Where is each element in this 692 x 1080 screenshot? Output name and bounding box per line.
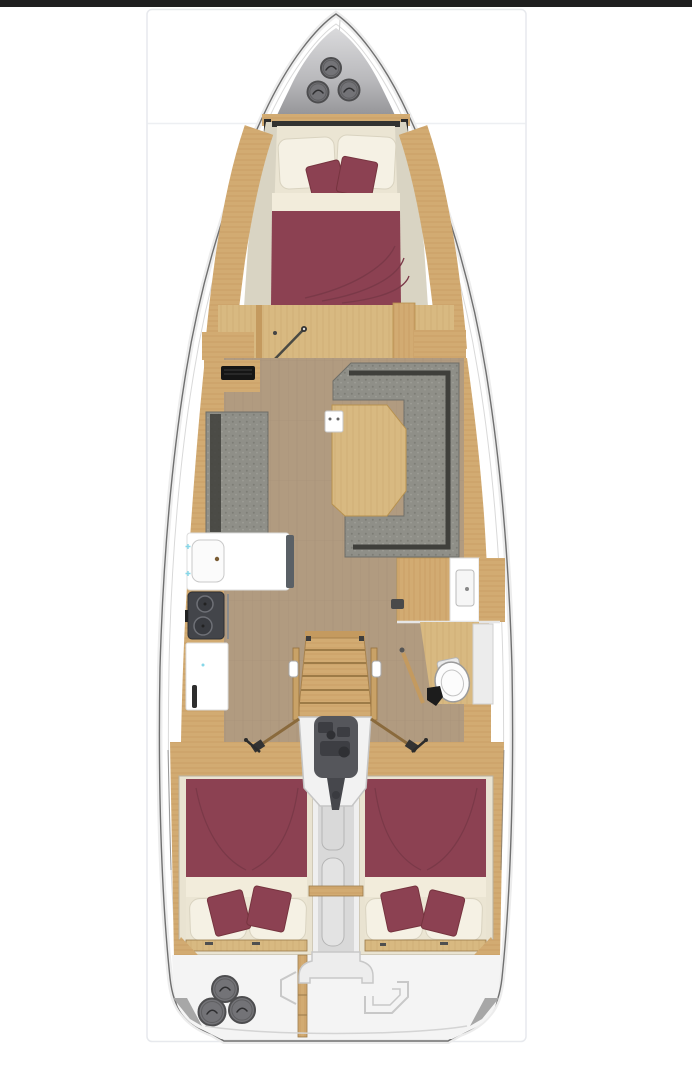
forward-berth bbox=[271, 121, 409, 307]
fridge-handle bbox=[192, 685, 197, 708]
berth-foot-trim bbox=[186, 940, 307, 951]
engine-pulley bbox=[339, 747, 350, 758]
hanging-locker bbox=[393, 303, 415, 363]
stair-bracket bbox=[306, 636, 311, 641]
trim-latch bbox=[440, 942, 448, 945]
cabinet-divider bbox=[256, 305, 262, 363]
engine-detail bbox=[337, 727, 350, 737]
handle-knob bbox=[424, 738, 428, 742]
stair-rail-port bbox=[293, 648, 299, 720]
starboard-cabinet-fwd bbox=[414, 330, 466, 360]
port-cabinet-fwd bbox=[202, 332, 254, 360]
engine-pulley bbox=[327, 731, 336, 740]
grab-handle bbox=[372, 661, 381, 677]
vent-grille-icon bbox=[221, 366, 255, 380]
stair-bracket bbox=[359, 636, 364, 641]
aft-cabin-starboard bbox=[359, 776, 497, 963]
door-hinge-pin bbox=[303, 328, 305, 330]
shower-panel bbox=[473, 624, 493, 704]
aft-cabin-port bbox=[175, 776, 313, 963]
door-handle-icon bbox=[391, 599, 404, 609]
latch-dot bbox=[337, 418, 340, 421]
page-canvas bbox=[0, 0, 692, 1080]
handle-knob bbox=[244, 738, 248, 742]
deck-hatch-icon bbox=[199, 999, 226, 1026]
latch-dot bbox=[329, 418, 332, 421]
bench-backrest bbox=[210, 414, 221, 532]
head-sink-icon bbox=[456, 570, 474, 606]
faucet-icon bbox=[215, 557, 219, 561]
bilge-panel bbox=[322, 858, 344, 946]
saildrive-hub bbox=[332, 791, 340, 799]
blanket bbox=[271, 211, 401, 305]
stair-rail-starboard bbox=[371, 648, 377, 720]
deck-hatch-icon bbox=[229, 997, 255, 1023]
trim-latch bbox=[380, 943, 386, 946]
deck-hatch-icon bbox=[339, 80, 360, 101]
decor-cushion bbox=[246, 885, 291, 932]
floor-latch bbox=[273, 331, 277, 335]
indicator-dot bbox=[202, 664, 205, 667]
grab-handle bbox=[289, 661, 298, 677]
decor-cushion bbox=[336, 156, 378, 198]
burner-center bbox=[204, 603, 207, 606]
burner-center bbox=[202, 625, 205, 628]
head-door-panel bbox=[397, 558, 450, 622]
salon-table bbox=[325, 405, 406, 516]
stove-gimbal bbox=[185, 610, 188, 622]
stair-top-rim bbox=[305, 631, 365, 638]
trim-latch bbox=[252, 942, 260, 945]
sheet-band bbox=[272, 193, 400, 211]
blanket bbox=[365, 779, 486, 877]
table-latch bbox=[325, 411, 343, 432]
jamb-hinge bbox=[400, 648, 405, 653]
trim-latch bbox=[205, 942, 213, 945]
forward-vestibule bbox=[202, 303, 466, 363]
galley-sink-icon bbox=[192, 540, 224, 582]
stern bbox=[171, 952, 501, 1039]
top-bar bbox=[0, 0, 692, 7]
faucet-icon bbox=[465, 587, 469, 591]
deck-hatch-icon bbox=[308, 82, 329, 103]
decor-cushion bbox=[380, 885, 425, 932]
deck-hatch-icon bbox=[321, 58, 341, 78]
counter-end-panel bbox=[286, 535, 294, 588]
head-shelf bbox=[479, 558, 505, 622]
corridor-step bbox=[309, 886, 363, 896]
blanket bbox=[186, 779, 307, 877]
port-bench bbox=[206, 412, 268, 543]
